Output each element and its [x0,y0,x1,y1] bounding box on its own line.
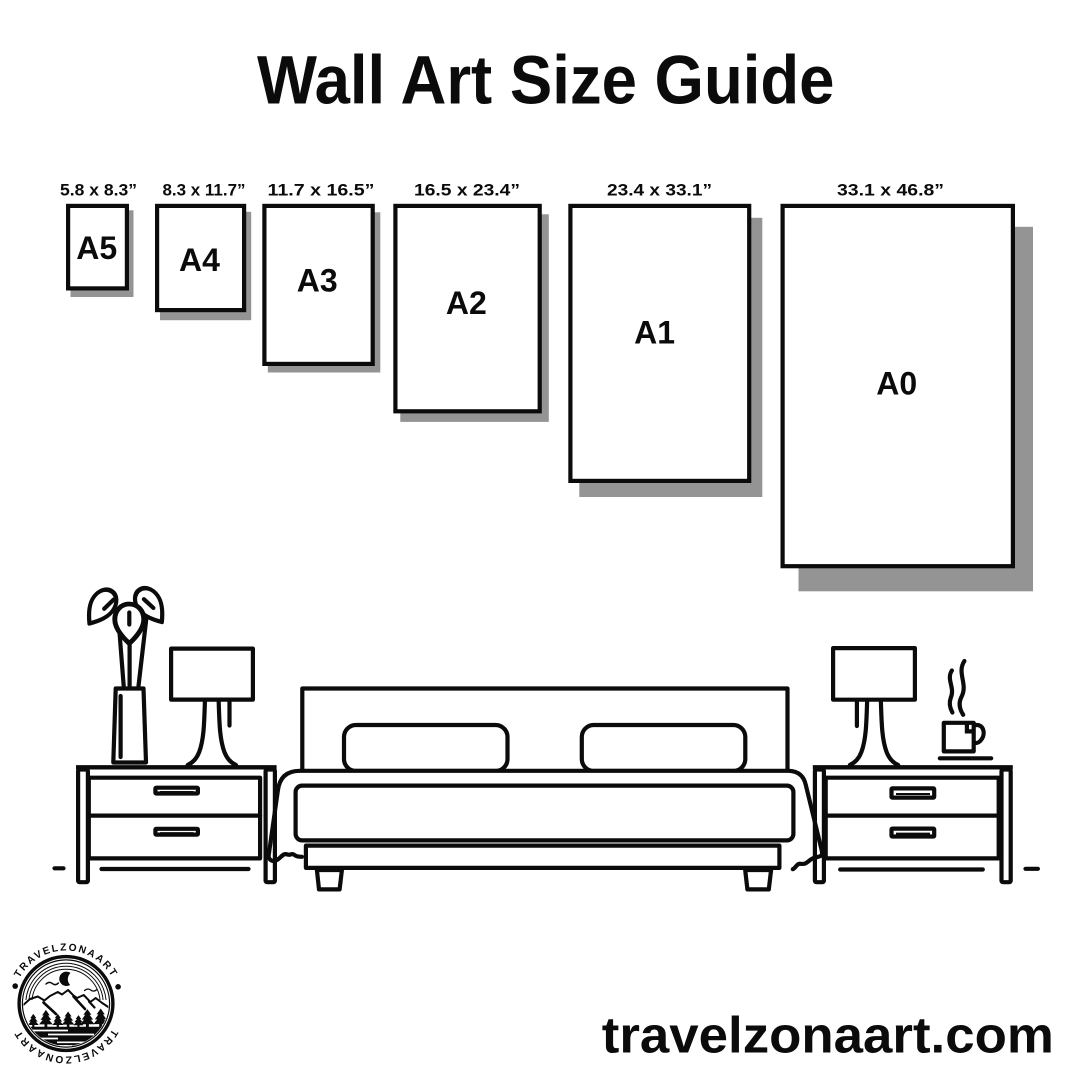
svg-text:travelzonaart.com: travelzonaart.com [602,1007,1054,1064]
svg-text:23.4 x 33.1”: 23.4 x 33.1” [607,181,712,200]
svg-text:A1: A1 [634,315,675,351]
svg-text:Wall Art Size Guide: Wall Art Size Guide [257,42,835,119]
svg-text:A5: A5 [76,230,117,266]
svg-text:11.7 x 16.5”: 11.7 x 16.5” [268,181,375,200]
svg-text:A0: A0 [876,365,917,401]
svg-text:A3: A3 [297,263,338,299]
svg-text:16.5 x 23.4”: 16.5 x 23.4” [414,181,520,200]
svg-text:8.3 x 11.7”: 8.3 x 11.7” [163,181,246,200]
svg-text:33.1 x 46.8”: 33.1 x 46.8” [837,181,944,200]
svg-text:5.8 x 8.3”: 5.8 x 8.3” [60,181,137,200]
svg-text:A4: A4 [179,242,220,278]
svg-text:A2: A2 [446,285,487,321]
